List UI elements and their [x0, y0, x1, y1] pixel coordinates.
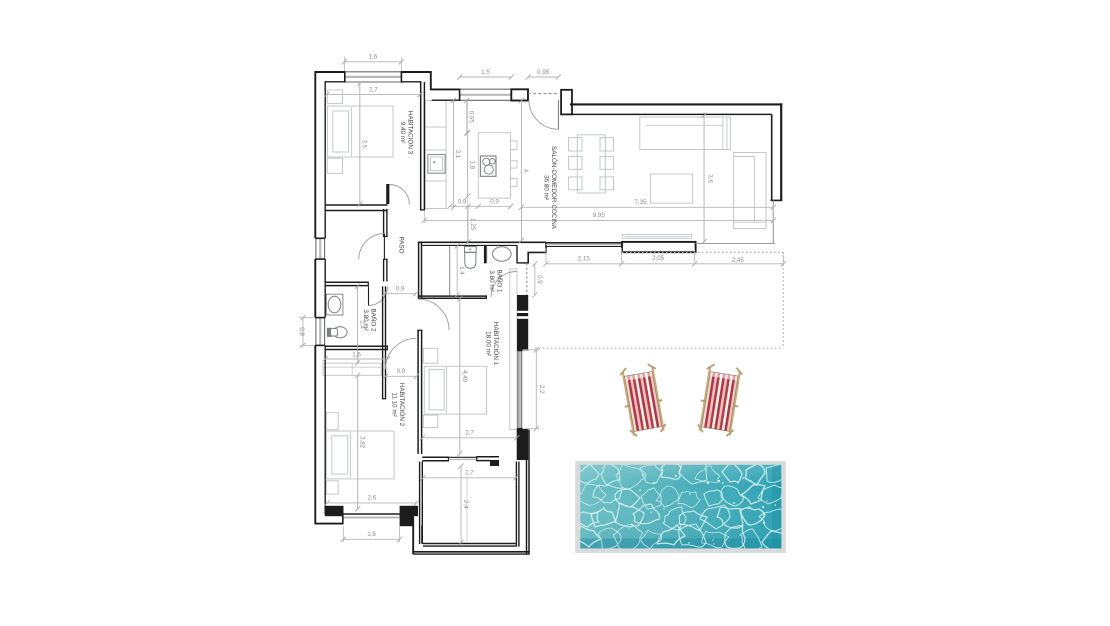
svg-text:4,49: 4,49	[461, 370, 468, 383]
svg-text:2,15: 2,15	[578, 256, 591, 263]
svg-text:1,4: 1,4	[458, 266, 465, 275]
svg-text:2,05: 2,05	[652, 255, 665, 262]
svg-text:9,95: 9,95	[593, 212, 606, 219]
svg-text:BAÑO 23.80 m²: BAÑO 23.80 m²	[362, 308, 378, 332]
svg-text:3,6: 3,6	[707, 174, 714, 183]
svg-text:2,4: 2,4	[462, 500, 469, 509]
svg-text:0,9: 0,9	[458, 198, 467, 205]
svg-text:1,6: 1,6	[352, 352, 361, 359]
svg-text:2,7: 2,7	[369, 86, 378, 93]
svg-text:3,5: 3,5	[360, 139, 367, 148]
svg-text:2,7: 2,7	[465, 470, 474, 477]
svg-text:0,95: 0,95	[537, 69, 550, 76]
svg-text:1,8: 1,8	[469, 160, 476, 169]
svg-text:2,7: 2,7	[465, 430, 474, 437]
svg-text:7,35: 7,35	[634, 199, 647, 206]
svg-text:BAÑO 13.80 m²: BAÑO 13.80 m²	[488, 269, 504, 293]
svg-text:0,8: 0,8	[298, 327, 305, 336]
svg-text:1,5: 1,5	[481, 69, 490, 76]
svg-text:0,9: 0,9	[490, 198, 499, 205]
svg-text:2,2: 2,2	[538, 385, 545, 394]
svg-text:0,9: 0,9	[397, 368, 406, 375]
svg-text:1,6: 1,6	[367, 531, 376, 538]
svg-text:4: 4	[522, 169, 529, 173]
svg-text:PASO: PASO	[398, 236, 405, 253]
svg-text:1,25: 1,25	[469, 218, 476, 231]
svg-text:2,6: 2,6	[367, 495, 376, 502]
svg-text:0,95: 0,95	[467, 111, 474, 124]
svg-text:0,9: 0,9	[536, 275, 543, 284]
svg-text:3,82: 3,82	[359, 436, 366, 449]
svg-text:3,1: 3,1	[454, 150, 461, 159]
svg-text:0,9: 0,9	[396, 286, 405, 293]
svg-text:2,45: 2,45	[732, 257, 745, 264]
svg-text:1,6: 1,6	[369, 54, 378, 61]
